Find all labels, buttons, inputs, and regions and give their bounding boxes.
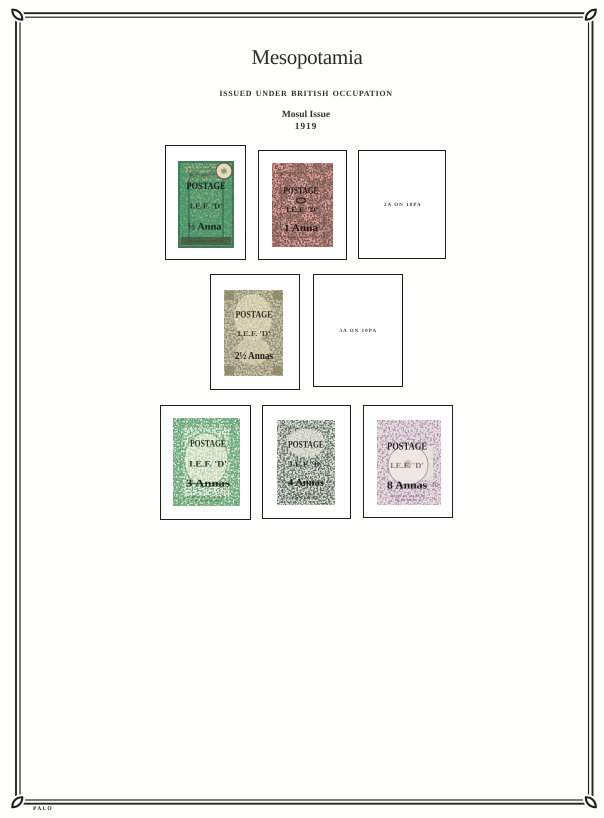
svg-text:POSTAGE: POSTAGE: [284, 185, 319, 196]
svg-text:I.E.F. 'D': I.E.F. 'D': [238, 329, 271, 338]
svg-text:I.E.F. 'D': I.E.F. 'D': [190, 201, 223, 210]
svg-text:POSTAGE: POSTAGE: [190, 438, 226, 449]
svg-text:POSTAGE: POSTAGE: [236, 309, 273, 320]
svg-text:I.E.F. 'D': I.E.F. 'D': [390, 461, 424, 470]
svg-text:POSTAGE: POSTAGE: [187, 180, 226, 191]
svg-text:8 Annas: 8 Annas: [387, 480, 427, 491]
svg-text:10: 10: [431, 481, 439, 489]
svg-text:POSTAGE: POSTAGE: [288, 440, 324, 451]
svg-text:I.E.F. 'D': I.E.F. 'D': [290, 459, 323, 468]
svg-text:I.E.F. 'D': I.E.F. 'D': [189, 460, 227, 469]
svg-text:1 Anna: 1 Anna: [284, 223, 318, 234]
svg-text:POSTAGE: POSTAGE: [387, 441, 427, 452]
svg-text:I.E.F. 'D': I.E.F. 'D': [286, 206, 318, 214]
svg-text:2½ Annas: 2½ Annas: [235, 351, 273, 362]
svg-text:½ Anna: ½ Anna: [188, 221, 222, 232]
